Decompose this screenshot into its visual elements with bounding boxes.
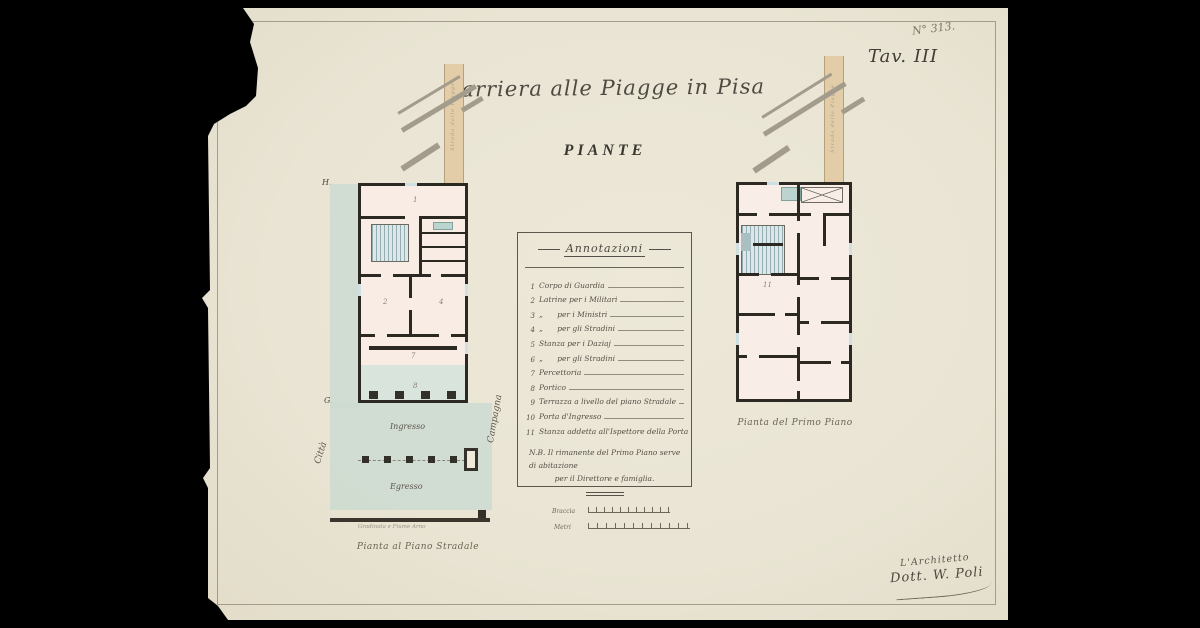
embankment-pillar	[478, 510, 486, 518]
item-text: Porta d'Ingresso	[535, 412, 604, 422]
wall	[419, 216, 422, 274]
annotation-item: 1Corpo di Guardia	[525, 276, 684, 291]
wall	[797, 347, 800, 381]
item-text: Corpo di Guardia	[535, 281, 608, 291]
staircase-hatch	[371, 224, 409, 262]
room-number: 4	[439, 298, 443, 306]
annotation-item: 9Terrazza a livello del piano Stradale	[525, 393, 684, 408]
ground-plan-caption: Pianta al Piano Stradale	[338, 542, 498, 552]
room-number: 1	[413, 196, 417, 204]
item-leader	[608, 287, 684, 288]
item-text: „ per gli Stradini	[535, 354, 618, 364]
nb-line1: N.B. Il rimanente del Primo Piano serve …	[525, 446, 684, 472]
annotation-item: 10Porta d'Ingresso	[525, 407, 684, 422]
item-text: „ per gli Stradini	[535, 324, 618, 334]
item-leader	[614, 345, 684, 346]
annotation-item: 8Portico	[525, 378, 684, 393]
annotations-rule	[525, 267, 684, 268]
wall	[441, 274, 465, 277]
old-wall-stub-left	[752, 145, 790, 173]
wall	[739, 355, 747, 358]
item-leader	[604, 418, 684, 419]
gate-pillar	[464, 448, 478, 471]
room-number: 7	[411, 352, 415, 360]
wall	[361, 334, 375, 337]
wall	[422, 246, 465, 248]
wall	[393, 274, 431, 277]
wall	[739, 213, 757, 216]
item-number: 5	[525, 341, 535, 349]
wall	[361, 274, 381, 277]
door-sill	[465, 342, 468, 354]
wall	[739, 313, 775, 316]
braccia-scale-bar	[588, 507, 670, 513]
item-text: Stanza per i Daziaj	[535, 339, 614, 349]
wall	[759, 355, 797, 358]
item-leader	[618, 330, 684, 331]
wall	[387, 334, 439, 337]
item-number: 2	[525, 297, 535, 305]
wall	[800, 277, 819, 280]
annotation-item: 5Stanza per i Daziaj	[525, 334, 684, 349]
side-terrace-wash	[330, 184, 359, 408]
wall	[785, 313, 797, 316]
item-text: Stanza addetta all'Ispettore della Porta	[535, 427, 691, 437]
drawing-subtitle: PIANTE	[520, 142, 690, 160]
item-number: 8	[525, 385, 535, 393]
latrine-fixture	[433, 222, 453, 230]
room-number: 11	[763, 281, 772, 289]
item-leader	[584, 374, 684, 375]
wall	[797, 297, 800, 335]
item-number: 6	[525, 356, 535, 364]
header-dash	[649, 249, 671, 250]
door-sill	[736, 333, 739, 345]
gate-post	[384, 456, 391, 463]
metri-scale-label: Metri	[554, 524, 571, 531]
old-wall-stub-right	[461, 96, 484, 113]
wall	[422, 260, 465, 262]
scanned-drawing: N° 313. Tav. III Barriera alle Piagge in…	[0, 0, 1200, 628]
wall	[422, 232, 465, 234]
annotation-item: 6„ per gli Stradini	[525, 349, 684, 364]
portico-post	[421, 391, 430, 399]
stair-landing	[741, 233, 751, 251]
item-text: Portico	[535, 383, 569, 393]
building-outline-ground: 1 2 4 7 8	[358, 183, 468, 403]
annotations-box: Annotazioni 1Corpo di Guardia 2Latrine p…	[517, 232, 692, 487]
skylight-detail	[801, 187, 843, 203]
item-number: 1	[525, 283, 535, 291]
wall	[800, 361, 831, 364]
item-leader	[569, 389, 684, 390]
first-plan-caption: Pianta del Primo Piano	[720, 418, 870, 428]
item-text: „ per i Ministri	[535, 310, 610, 320]
item-number: 4	[525, 326, 535, 334]
wall	[409, 310, 412, 334]
egresso-label: Egresso	[390, 482, 423, 491]
nb-line2: per il Direttore e famiglia.	[525, 472, 684, 485]
room-number: 2	[383, 298, 387, 306]
item-number: 7	[525, 370, 535, 378]
wall	[419, 216, 465, 219]
counter-wall	[369, 346, 457, 350]
wall	[823, 216, 826, 246]
annotation-item: 3„ per i Ministri	[525, 305, 684, 320]
portico-post	[447, 391, 456, 399]
gate-post	[362, 456, 369, 463]
wall	[797, 391, 800, 399]
ground-floor-plan: Strada delle Piagge H. G.	[328, 56, 508, 576]
wall	[451, 334, 465, 337]
paper-sheet: N° 313. Tav. III Barriera alle Piagge in…	[200, 8, 1008, 620]
wall	[823, 213, 849, 216]
gate-post	[450, 456, 457, 463]
wall	[769, 213, 811, 216]
item-number: 10	[525, 414, 535, 422]
wall	[771, 273, 797, 276]
wall	[753, 243, 783, 246]
wall	[409, 277, 412, 298]
wall	[797, 185, 800, 221]
wall	[361, 216, 405, 219]
item-leader	[618, 360, 684, 361]
header-dash	[538, 249, 560, 250]
item-number: 3	[525, 312, 535, 320]
embankment-note: Gradinata e Fiume Arno	[358, 524, 425, 530]
gate-post	[406, 456, 413, 463]
ingresso-label: Ingresso	[390, 422, 425, 431]
annotation-item: 7Percettoria	[525, 364, 684, 379]
metri-scale-bar	[588, 523, 690, 529]
door-sill	[849, 243, 852, 255]
door-sill	[465, 284, 468, 296]
nota-bene: N.B. Il rimanente del Primo Piano serve …	[525, 446, 684, 496]
annotations-title: Annotazioni	[564, 242, 645, 257]
wall	[841, 361, 849, 364]
wall	[831, 277, 849, 280]
wall	[821, 321, 849, 324]
road-label: Strada delle Piagge	[450, 82, 456, 151]
old-wall-stub-left	[400, 143, 440, 172]
gate-post	[428, 456, 435, 463]
item-leader	[679, 403, 684, 404]
door-sill	[767, 182, 779, 185]
door-sill	[405, 183, 417, 186]
item-text: Percettoria	[535, 368, 584, 378]
door-sill	[358, 284, 361, 296]
first-floor-plan: Strada delle Piagge	[720, 50, 880, 450]
annotation-item: 4„ per gli Stradini	[525, 320, 684, 335]
item-text: Latrine per i Militari	[535, 295, 620, 305]
annotations-header: Annotazioni	[525, 242, 684, 257]
item-leader	[610, 316, 684, 317]
item-number: 9	[525, 399, 535, 407]
nb-rule	[586, 492, 624, 496]
item-leader	[620, 301, 684, 302]
portico-post	[369, 391, 378, 399]
portico-post	[395, 391, 404, 399]
embankment-bar	[330, 518, 490, 522]
item-number: 11	[525, 429, 535, 437]
annotation-item: 11Stanza addetta all'Ispettore della Por…	[525, 422, 684, 437]
braccia-scale-label: Braccia	[552, 508, 575, 515]
annotation-item: 2Latrine per i Militari	[525, 291, 684, 306]
building-outline-first: 11	[736, 182, 852, 402]
item-text: Terrazza a livello del piano Stradale	[535, 397, 679, 407]
wall	[739, 273, 759, 276]
wall	[800, 321, 809, 324]
old-wall-stub-right	[841, 97, 866, 115]
door-sill	[736, 243, 739, 255]
door-sill	[849, 333, 852, 345]
room-number: 8	[413, 382, 417, 390]
